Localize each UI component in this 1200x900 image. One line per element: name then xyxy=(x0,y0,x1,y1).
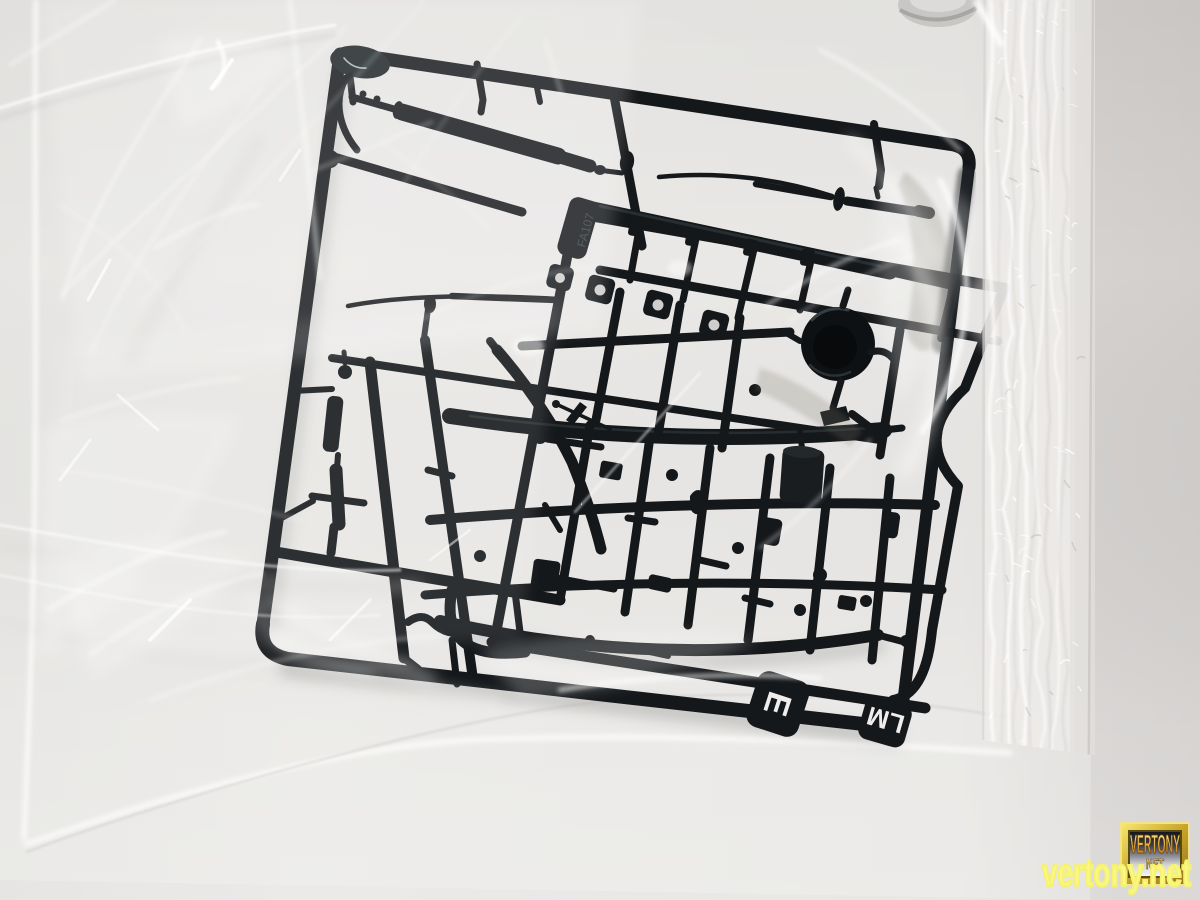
svg-text:vertony.net: vertony.net xyxy=(1042,852,1191,896)
